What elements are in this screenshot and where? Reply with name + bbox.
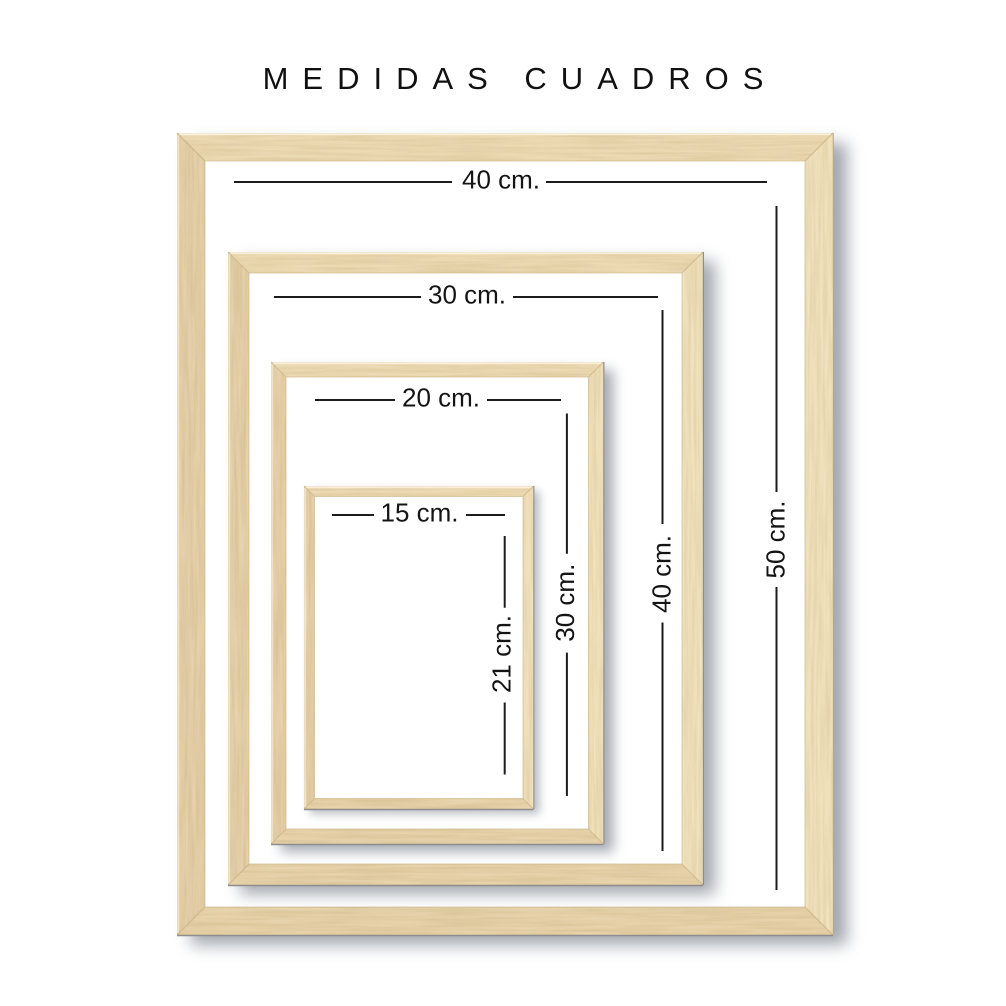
svg-text:40 cm.: 40 cm. [647, 535, 677, 613]
svg-text:30 cm.: 30 cm. [428, 280, 506, 310]
svg-text:MEDIDAS CUADROS: MEDIDAS CUADROS [263, 61, 778, 96]
svg-text:30 cm.: 30 cm. [550, 564, 580, 642]
svg-text:20 cm.: 20 cm. [402, 383, 480, 413]
svg-text:21 cm.: 21 cm. [487, 615, 517, 693]
svg-text:15 cm.: 15 cm. [380, 498, 458, 528]
svg-text:50 cm.: 50 cm. [761, 500, 791, 578]
svg-text:40 cm.: 40 cm. [462, 165, 540, 195]
